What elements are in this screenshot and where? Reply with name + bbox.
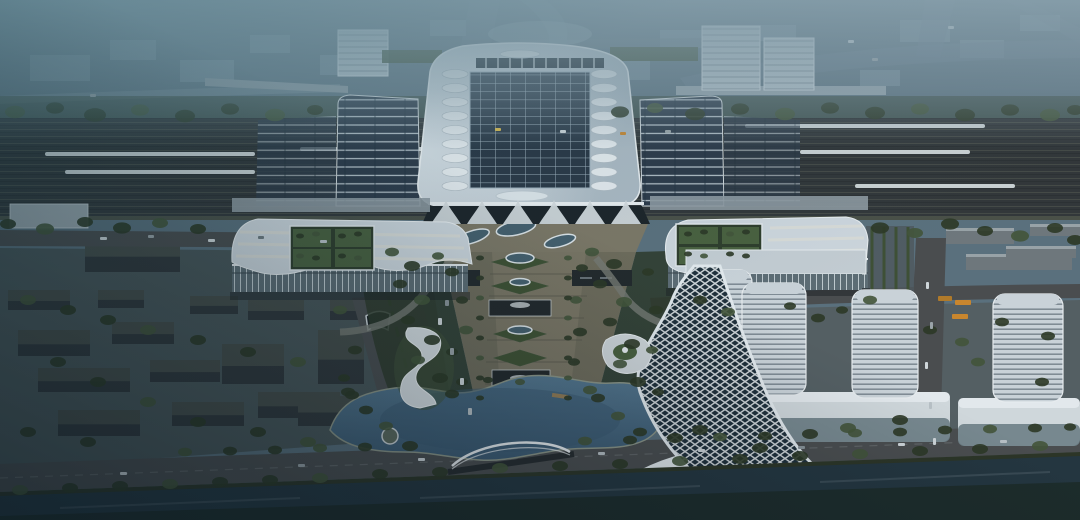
corner-vignette xyxy=(0,0,1080,520)
architectural-rendering: Aerial rendering of high-speed railway s… xyxy=(0,0,1080,520)
